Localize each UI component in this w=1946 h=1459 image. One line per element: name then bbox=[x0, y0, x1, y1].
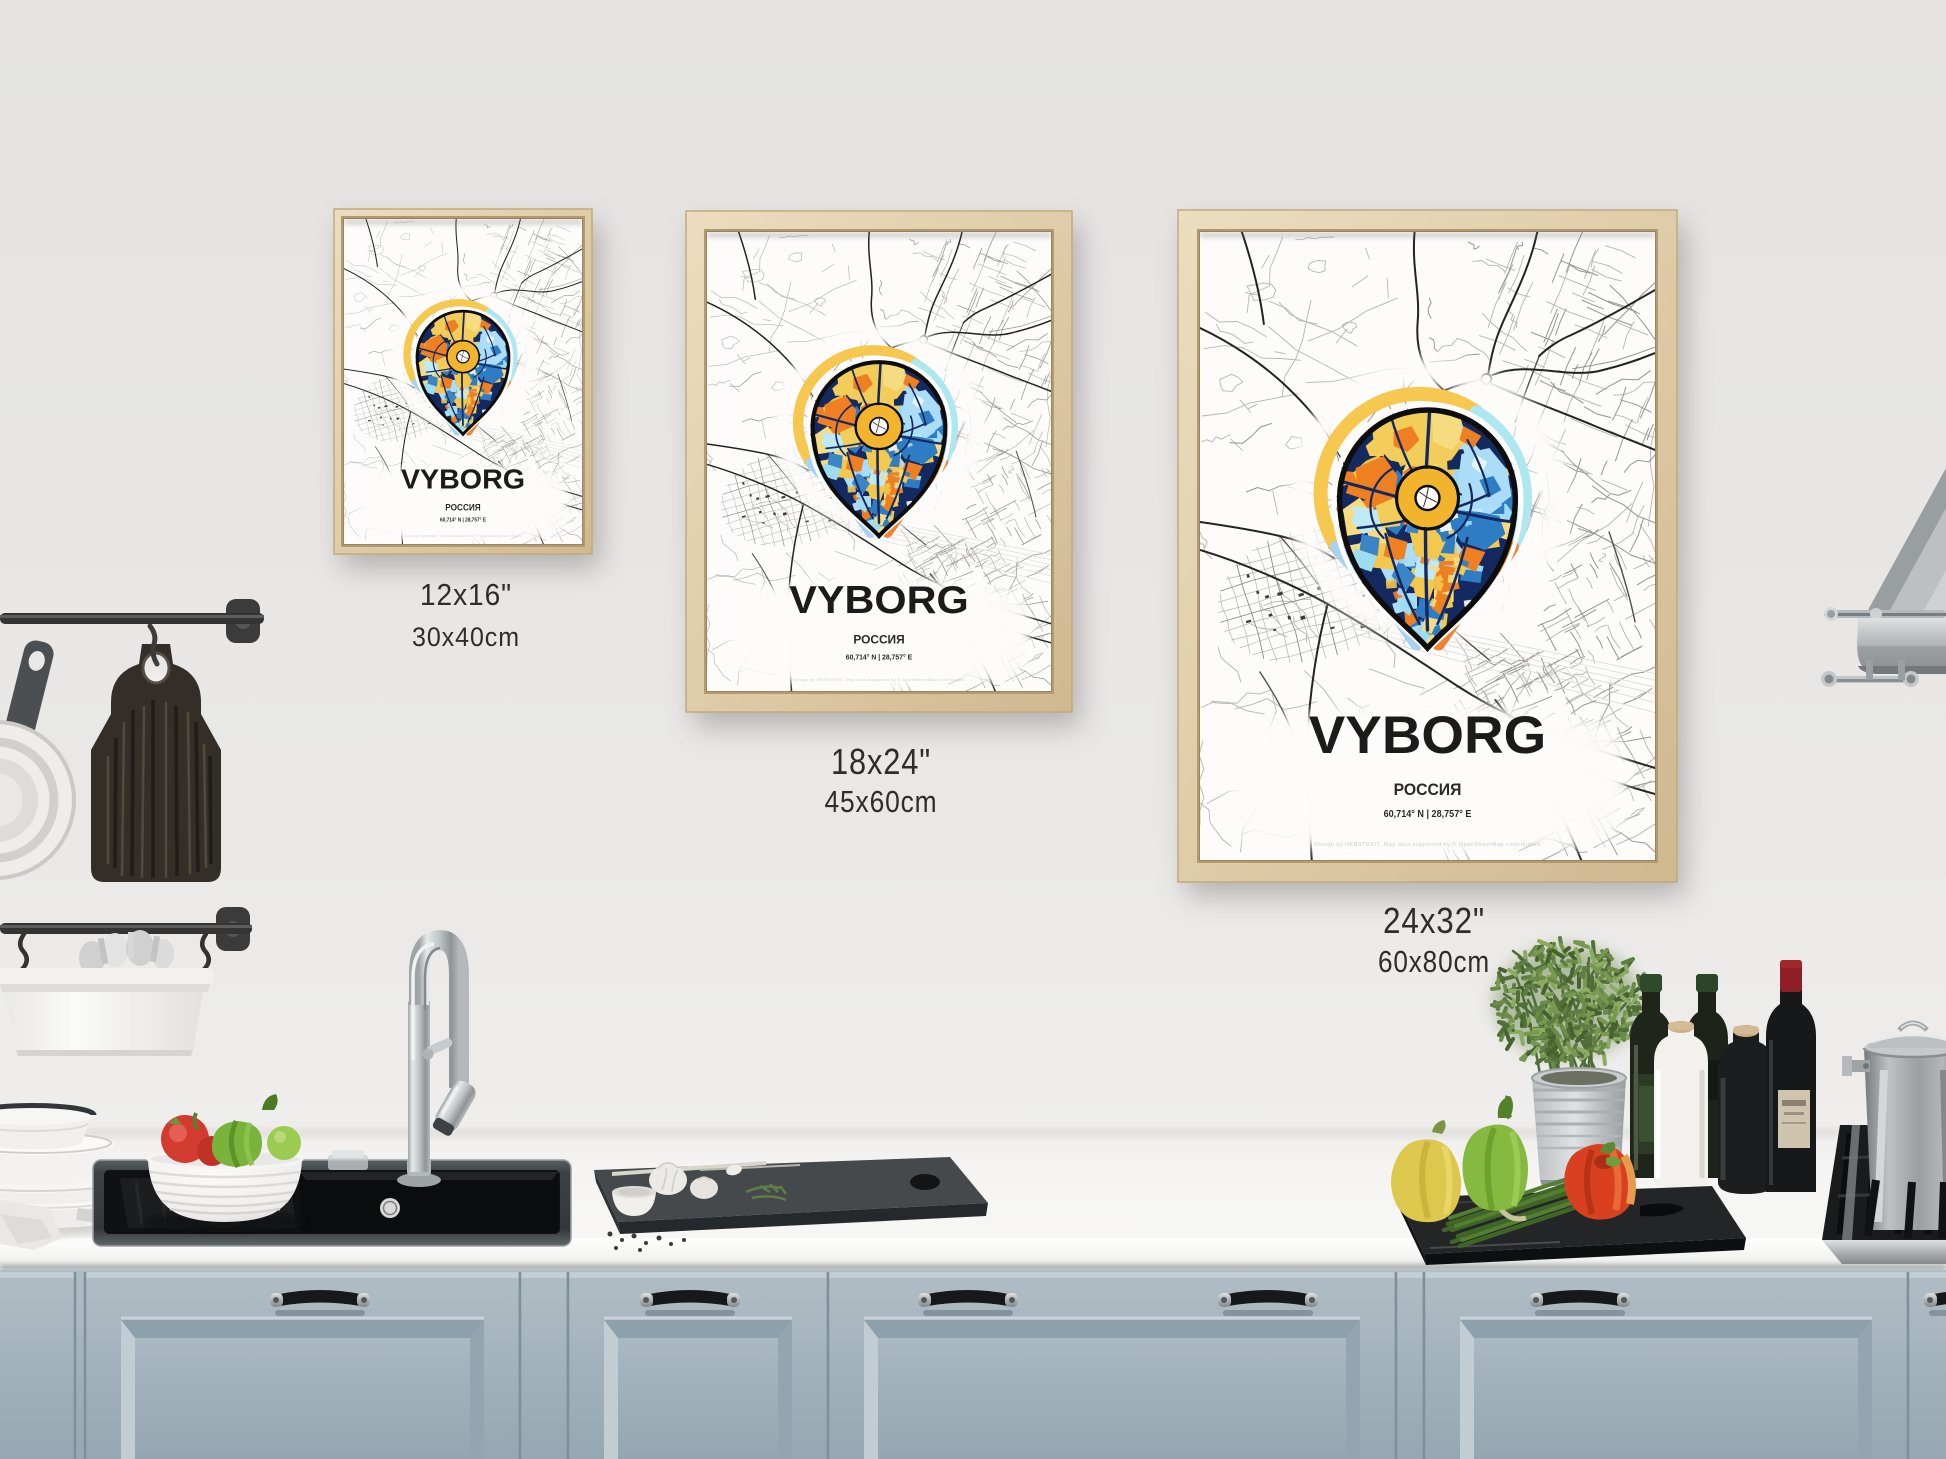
svg-text:30x40cm: 30x40cm bbox=[412, 622, 520, 652]
svg-text:45x60cm: 45x60cm bbox=[825, 784, 938, 819]
svg-text:12x16": 12x16" bbox=[420, 577, 512, 612]
svg-text:60x80cm: 60x80cm bbox=[1378, 944, 1490, 979]
svg-text:24x32": 24x32" bbox=[1383, 900, 1485, 941]
svg-text:18x24": 18x24" bbox=[831, 741, 931, 782]
